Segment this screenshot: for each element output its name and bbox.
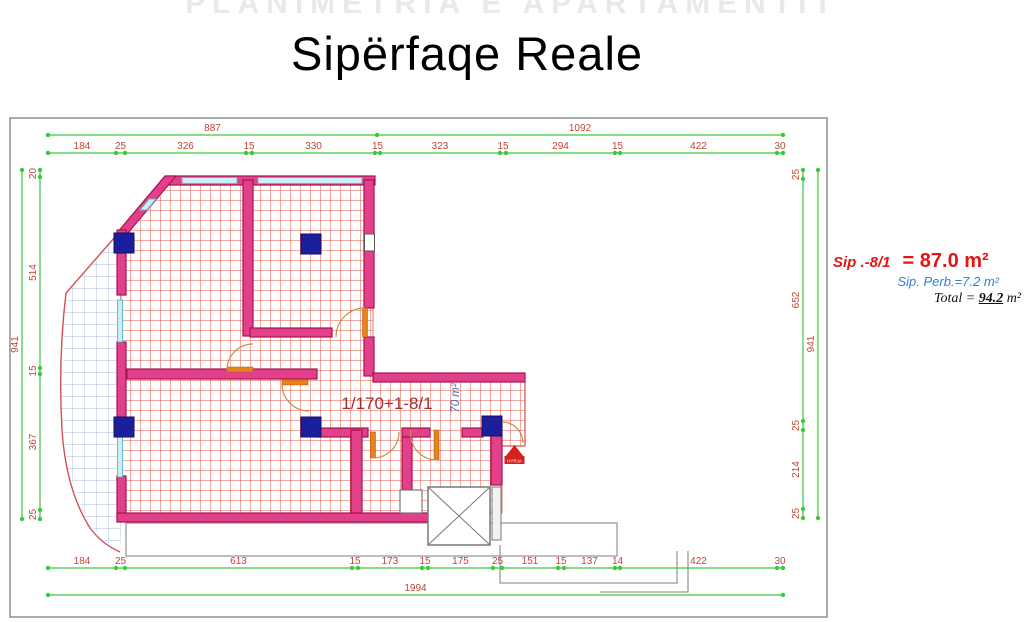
tiled-floor-area [121,180,525,513]
wall-wc3-top [462,428,483,437]
total-area-line: Total = 94.2 m² [833,291,1023,307]
door-leaf [363,308,368,337]
apartment-id: Sip .-8/1 [833,254,891,271]
dim-dot [781,593,785,597]
dim-label: 613 [230,556,247,567]
dim-label: 15 [419,556,431,567]
elevator-shaft [428,487,490,545]
dim-label: 514 [28,264,39,281]
dim-label: 30 [774,141,786,152]
column [482,416,502,436]
dim-label: 941 [806,335,817,352]
dim-label: 15 [243,141,255,152]
column [114,233,134,253]
area-annotation: Sip .-8/1 = 87.0 m² Sip. Perb.=7.2 m² To… [833,250,1023,307]
dim-label: 15 [497,141,509,152]
side-shaft [492,487,501,540]
dim-dot [46,566,50,570]
door-leaf [371,432,376,458]
dim-label: 323 [432,141,449,152]
column [114,417,134,437]
dim-label: 887 [204,123,221,134]
door-leaf [227,367,253,372]
wall-entry-vertical [491,435,502,485]
dim-label: 20 [28,168,39,180]
dim-label: 25 [115,141,127,152]
dim-label: 367 [28,433,39,450]
duct-box [400,490,422,513]
total-value: 94.2 [979,291,1004,306]
dim-label: 15 [28,365,39,377]
dim-label: 326 [177,141,194,152]
entry-stamp: HYRJA [505,445,525,464]
dim-label: 294 [552,141,569,152]
dim-label: 330 [305,141,322,152]
dim-label: 184 [74,556,91,567]
dim-label: 137 [581,556,598,567]
total-eq: = [966,291,975,306]
dim-dot [46,133,50,137]
window-top-1 [182,178,237,184]
wall-main-horizontal [127,369,317,379]
wall-wc-divider [351,430,362,513]
dim-dot [781,133,785,137]
wall-center-vertical [243,180,253,336]
terrace-outline [126,523,688,592]
door-right-white [365,234,375,251]
room-label: 1/170+1-8/1 [341,394,432,413]
dim-label: 941 [10,336,21,353]
dim-label: 25 [791,508,802,520]
area-rotated-label: 70 m² [450,382,462,413]
area-main-line: Sip .-8/1 = 87.0 m² [833,250,1023,273]
dim-dot [20,517,24,521]
dim-label: 14 [612,556,624,567]
dim-label: 25 [115,556,127,567]
dim-label: 25 [791,169,802,181]
dim-dot [46,593,50,597]
dim-label: 652 [791,291,802,308]
dim-label: 25 [492,556,504,567]
dim-label: 173 [382,556,399,567]
dim-label: 15 [612,141,624,152]
wall-left-lower [117,476,126,515]
total-label: Total [934,291,962,306]
balcony-area [61,229,122,552]
page-title: Sipërfaqe Reale [0,26,979,81]
dim-label: 15 [555,556,567,567]
dim-label: 15 [372,141,384,152]
floor-plan-drawing: HYRJA 1/170+1-8/1 70 m² 8871092184253261… [0,0,1024,622]
window-left-1 [118,300,123,342]
dim-label: 30 [774,556,786,567]
dim-label: 25 [28,509,39,521]
door-leaf [282,380,308,385]
dim-label: 422 [690,141,707,152]
wall-wc2-flange [402,428,430,437]
wall-right-upper-2 [364,337,374,376]
wall-bottom [117,513,428,522]
wall-wing-top [373,373,525,382]
dim-label: 1092 [569,123,592,134]
drawing-sheet: PLANIMETRIA E APARTAMENTIT Sipërfaqe Rea… [0,0,1024,622]
window-top-2 [258,178,362,184]
ghost-header-text: PLANIMETRIA E APARTAMENTIT [0,0,1024,15]
wall-wc2-vertical [402,437,412,490]
dim-label: 184 [74,141,91,152]
window-left-2 [118,437,123,477]
column [301,417,321,437]
dim-label: 214 [791,461,802,478]
dim-label: 175 [452,556,469,567]
dim-dot [375,133,379,137]
common-area-line: Sip. Perb.=7.2 m² [833,274,1023,289]
entry-stamp-text: HYRJA [507,459,522,464]
door-leaf [434,430,439,460]
wall-room2-bottom [250,328,332,337]
dim-dot [816,168,820,172]
dim-label: 422 [690,556,707,567]
dim-label: 25 [791,420,802,432]
dim-dot [46,151,50,155]
wall-left-mid [117,342,126,418]
dim-label: 1994 [404,583,427,594]
dim-dot [20,168,24,172]
dim-label: 151 [522,556,539,567]
dim-dot [816,516,820,520]
apartment-area: = 87.0 m² [903,250,989,273]
dim-label: 15 [349,556,361,567]
column [301,234,321,254]
total-unit: m² [1007,291,1021,306]
